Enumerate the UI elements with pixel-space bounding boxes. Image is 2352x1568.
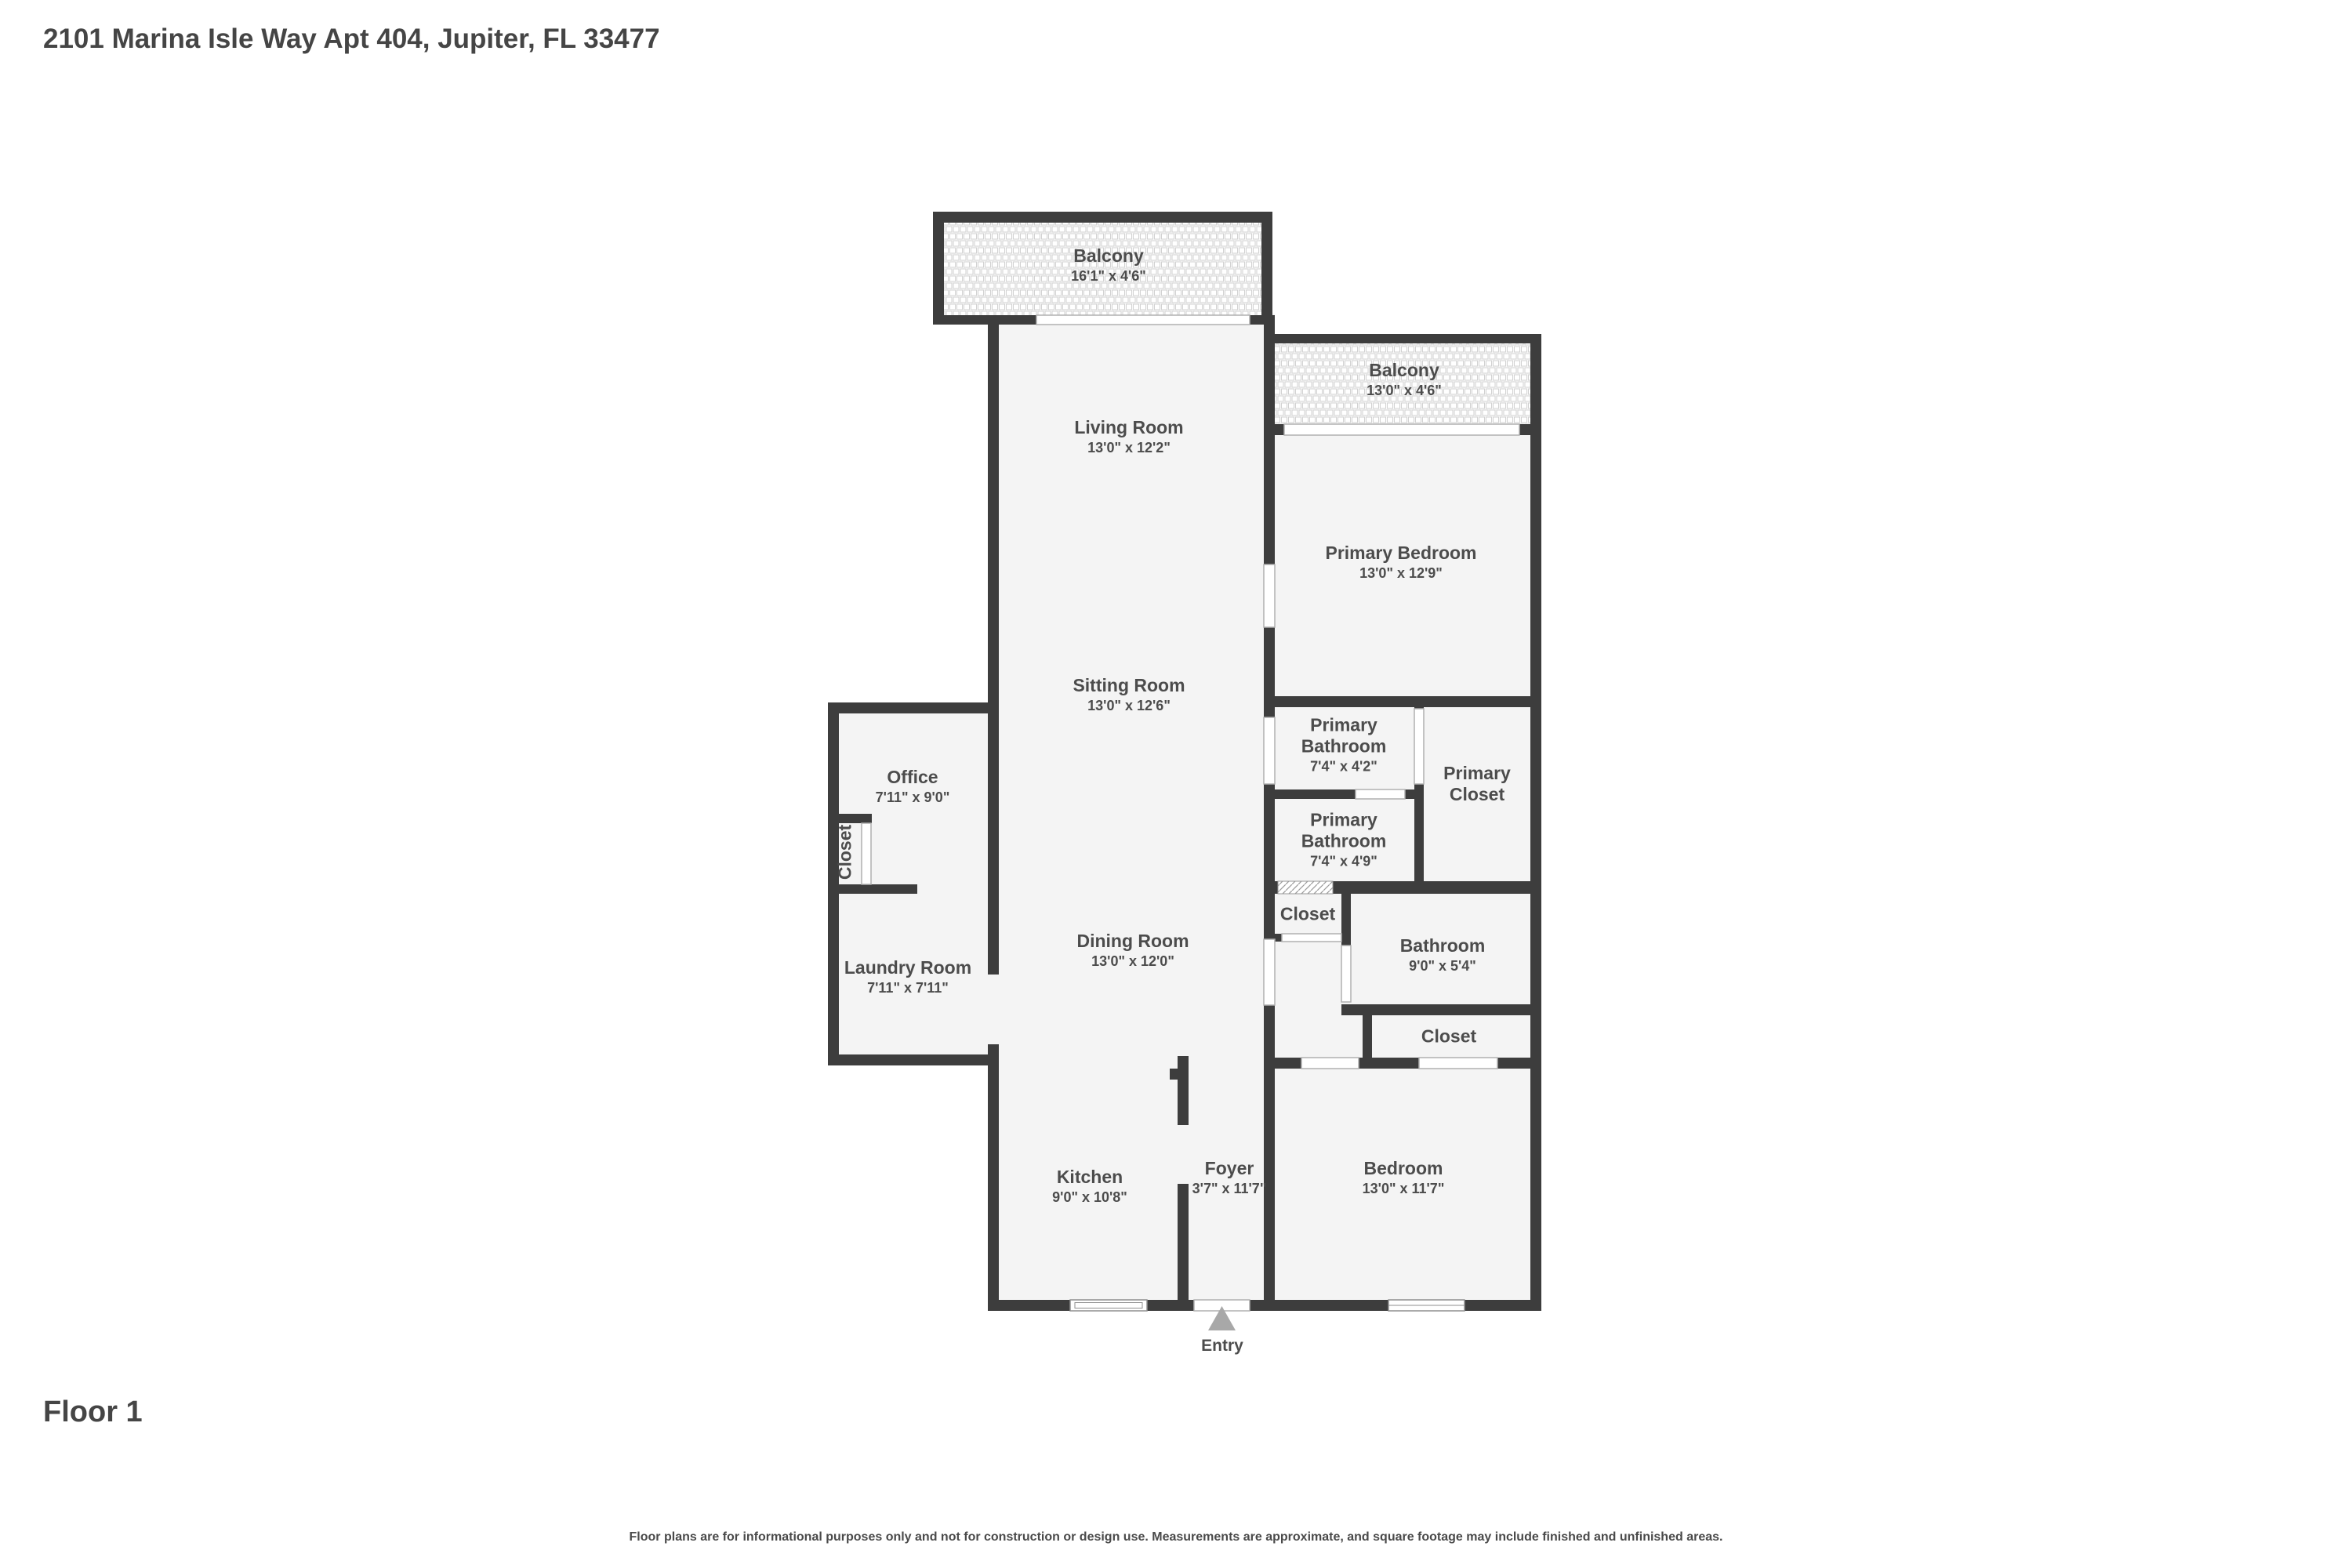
room-name: Primary Closet xyxy=(1432,763,1523,805)
room-dims: 9'0" x 10'8" xyxy=(1052,1189,1127,1206)
room-label-bedroom-closet: Closet xyxy=(1421,1025,1476,1047)
room-dims: 13'0" x 11'7" xyxy=(1363,1181,1445,1197)
room-name: Closet xyxy=(1421,1025,1476,1047)
room-name: Bedroom xyxy=(1363,1158,1445,1179)
room-name: Living Room xyxy=(1074,417,1183,438)
room-dims: 13'0" x 12'6" xyxy=(1073,698,1185,714)
room-label-hall-closet: Closet xyxy=(1280,903,1335,924)
room-dims: 16'1" x 4'6" xyxy=(1071,268,1146,285)
room-label-living-room: Living Room 13'0" x 12'2" xyxy=(1074,417,1183,456)
entry-label: Entry xyxy=(1201,1337,1243,1356)
room-name: Closet xyxy=(1280,903,1335,924)
room-name: Office xyxy=(876,767,950,788)
room-name: Sitting Room xyxy=(1073,675,1185,696)
room-label-bedroom: Bedroom 13'0" x 11'7" xyxy=(1363,1158,1445,1197)
room-dims: 13'0" x 12'0" xyxy=(1076,953,1189,970)
page-title: 2101 Marina Isle Way Apt 404, Jupiter, F… xyxy=(43,24,660,55)
room-dims: 13'0" x 12'9" xyxy=(1325,565,1476,582)
room-dims: 7'4" x 4'9" xyxy=(1289,854,1399,870)
room-name: Kitchen xyxy=(1052,1167,1127,1188)
room-label-balcony-right: Balcony 13'0" x 4'6" xyxy=(1367,360,1442,399)
room-label-primary-bathroom-2: Primary Bathroom 7'4" x 4'9" xyxy=(1289,809,1399,869)
room-label-laundry-room: Laundry Room 7'11" x 7'11" xyxy=(844,957,971,996)
disclaimer-text: Floor plans are for informational purpos… xyxy=(0,1530,2352,1544)
room-name: Primary Bathroom xyxy=(1289,714,1399,757)
room-dims: 7'11" x 7'11" xyxy=(844,980,971,996)
room-dims: 7'4" x 4'2" xyxy=(1289,759,1399,775)
room-dims: 13'0" x 12'2" xyxy=(1074,440,1183,456)
room-dims: 9'0" x 5'4" xyxy=(1400,958,1486,975)
room-name: Primary Bathroom xyxy=(1289,809,1399,851)
room-dims: 13'0" x 4'6" xyxy=(1367,383,1442,399)
floor-label: Floor 1 xyxy=(43,1396,143,1429)
room-label-primary-closet: Primary Closet xyxy=(1432,763,1523,805)
floorplan-page: 2101 Marina Isle Way Apt 404, Jupiter, F… xyxy=(0,0,2352,1568)
floorplan-drawing xyxy=(0,0,2352,1568)
room-name: Primary Bedroom xyxy=(1325,543,1476,564)
room-name: Laundry Room xyxy=(844,957,971,978)
room-dims: 7'11" x 9'0" xyxy=(876,789,950,806)
room-label-balcony-top: Balcony 16'1" x 4'6" xyxy=(1071,245,1146,285)
room-label-primary-bathroom-1: Primary Bathroom 7'4" x 4'2" xyxy=(1289,714,1399,775)
room-label-sitting-room: Sitting Room 13'0" x 12'6" xyxy=(1073,675,1185,714)
room-name: Balcony xyxy=(1071,245,1146,267)
room-name: Dining Room xyxy=(1076,931,1189,952)
room-name: Foyer xyxy=(1192,1158,1267,1179)
room-label-office: Office 7'11" x 9'0" xyxy=(876,767,950,806)
room-label-dining-room: Dining Room 13'0" x 12'0" xyxy=(1076,931,1189,970)
room-name: Bathroom xyxy=(1400,935,1486,956)
room-name: Closet xyxy=(834,825,855,880)
room-label-bathroom: Bathroom 9'0" x 5'4" xyxy=(1400,935,1486,975)
room-label-foyer: Foyer 3'7" x 11'7" xyxy=(1192,1158,1267,1197)
hatched-door xyxy=(1278,881,1333,894)
room-dims: 3'7" x 11'7" xyxy=(1192,1181,1267,1197)
room-label-office-closet: Closet xyxy=(834,825,855,880)
room-label-kitchen: Kitchen 9'0" x 10'8" xyxy=(1052,1167,1127,1206)
room-name: Balcony xyxy=(1367,360,1442,381)
room-label-primary-bedroom: Primary Bedroom 13'0" x 12'9" xyxy=(1325,543,1476,582)
